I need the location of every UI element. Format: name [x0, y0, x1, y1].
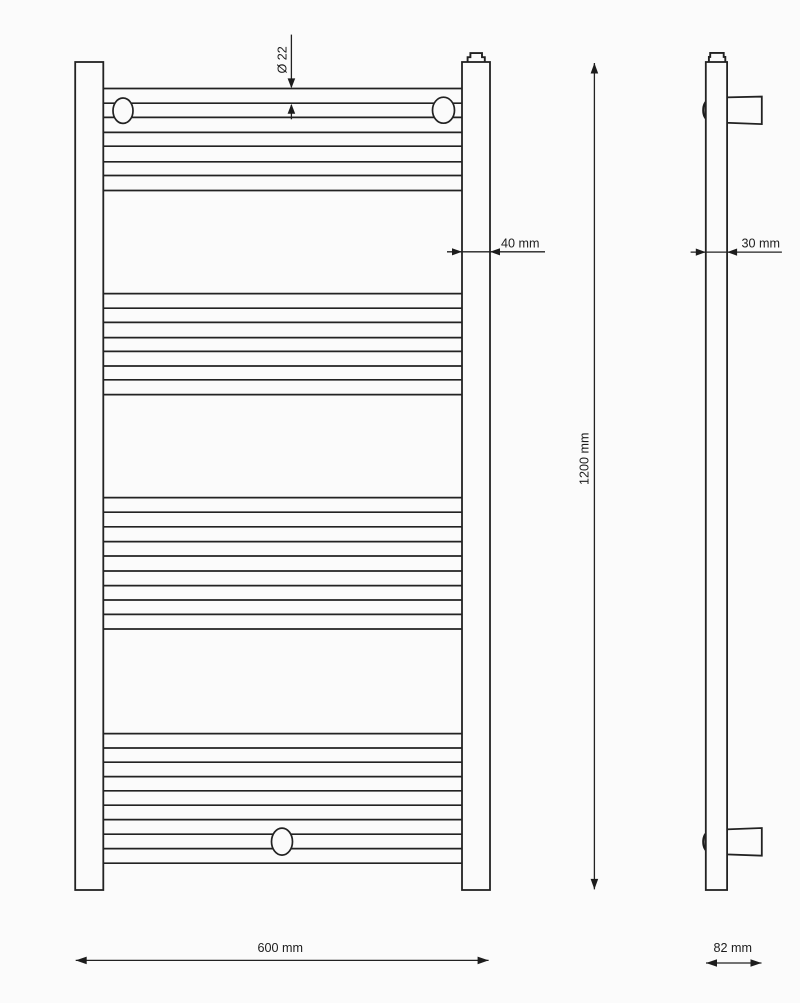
- svg-text:600 mm: 600 mm: [258, 941, 304, 955]
- svg-text:1200 mm: 1200 mm: [578, 433, 592, 486]
- svg-text:30 mm: 30 mm: [742, 237, 781, 251]
- svg-text:Ø 22: Ø 22: [276, 46, 290, 73]
- svg-text:40 mm: 40 mm: [501, 236, 540, 250]
- svg-text:82 mm: 82 mm: [714, 941, 753, 955]
